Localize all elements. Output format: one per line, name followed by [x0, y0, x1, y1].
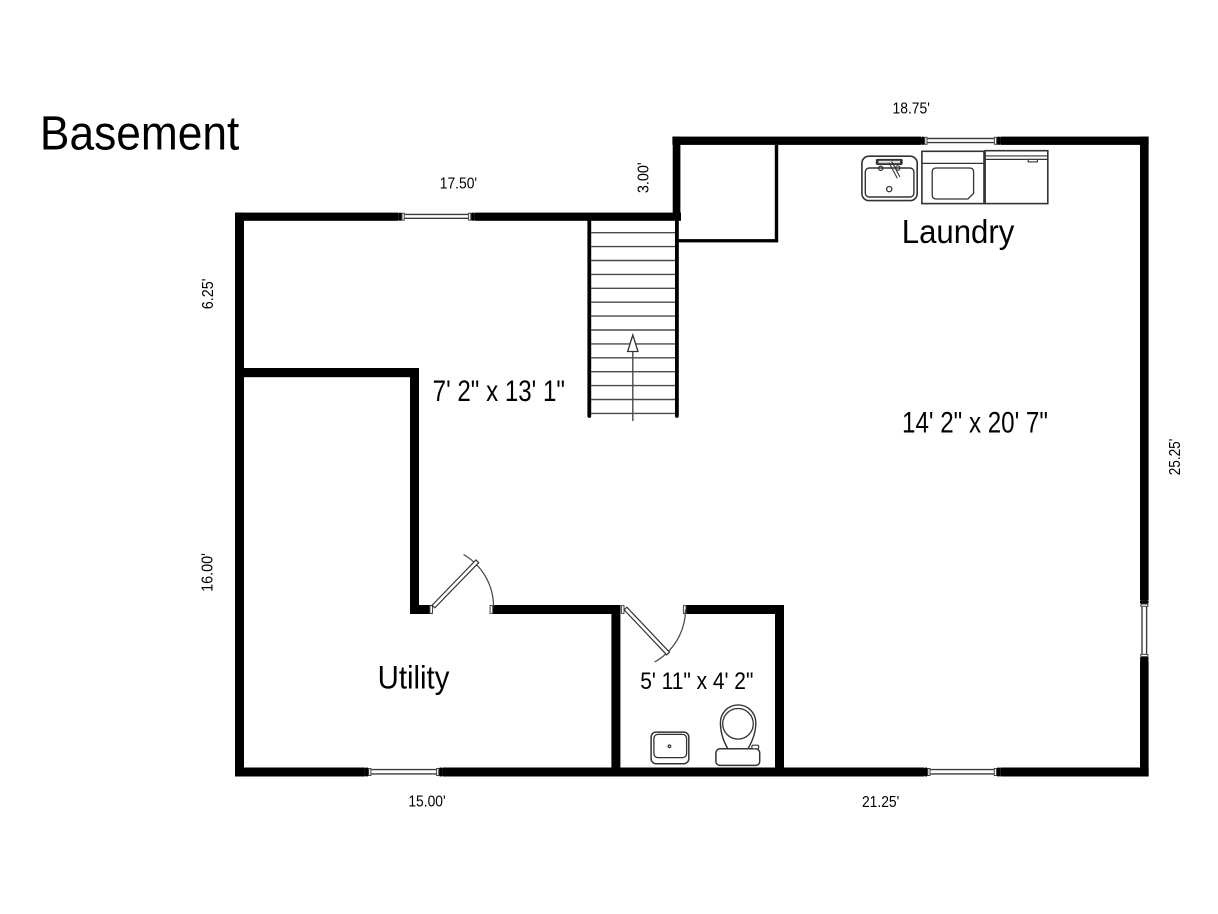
svg-text:7' 2" x 13' 1": 7' 2" x 13' 1" — [433, 375, 565, 408]
svg-text:3.00': 3.00' — [635, 162, 653, 193]
svg-text:14' 2" x 20' 7": 14' 2" x 20' 7" — [902, 406, 1048, 439]
svg-text:Utility: Utility — [378, 659, 450, 696]
svg-text:17.50': 17.50' — [440, 175, 477, 193]
svg-text:Laundry: Laundry — [902, 213, 1015, 250]
svg-text:18.75': 18.75' — [893, 100, 930, 118]
svg-text:21.25': 21.25' — [862, 793, 899, 811]
svg-text:25.25': 25.25' — [1167, 439, 1184, 476]
svg-text:5' 11" x 4' 2": 5' 11" x 4' 2" — [640, 667, 753, 694]
svg-text:Basement: Basement — [40, 106, 240, 160]
svg-text:6.25': 6.25' — [199, 278, 217, 309]
svg-text:15.00': 15.00' — [408, 793, 445, 811]
svg-text:16.00': 16.00' — [199, 553, 217, 592]
